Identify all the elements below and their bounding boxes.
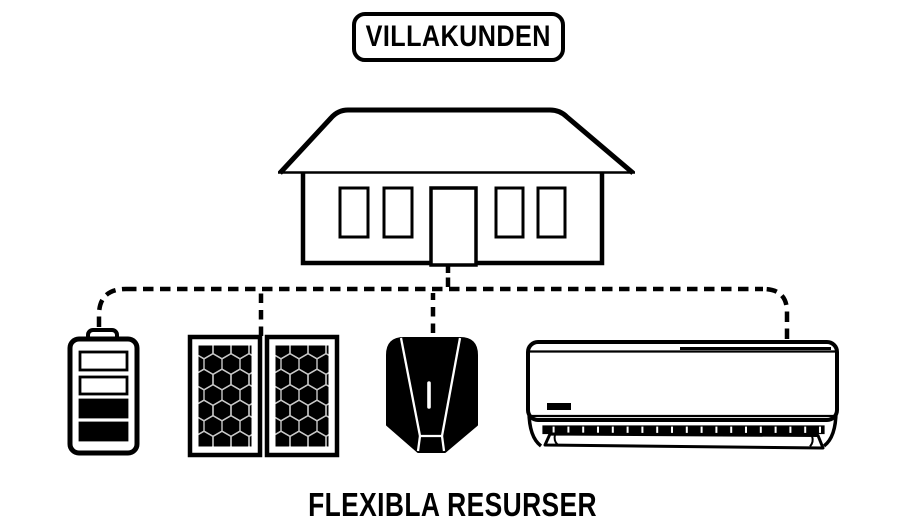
air-vent-louvers: [543, 426, 824, 434]
battery-icon: [64, 326, 142, 458]
solar-panel: [267, 337, 337, 455]
window: [538, 188, 565, 237]
solar-panel: [190, 337, 260, 455]
title-badge: VILLAKUNDEN: [352, 12, 565, 62]
heat-pump-icon: [525, 339, 840, 453]
window: [340, 188, 368, 237]
display-panel: [547, 403, 571, 410]
title-badge-label: VILLAKUNDEN: [366, 20, 551, 54]
ev-charger-icon: [384, 335, 482, 457]
infographic-canvas: VILLAKUNDEN FLEXIBLA RESURSER: [0, 0, 905, 528]
caption: FLEXIBLA RESURSER: [0, 486, 905, 524]
door: [431, 188, 476, 265]
window: [496, 188, 523, 237]
caption-label: FLEXIBLA RESURSER: [308, 486, 597, 524]
solar-panels-icon: [186, 333, 342, 459]
window: [384, 188, 412, 237]
house-icon: [266, 98, 640, 270]
air-flap: [545, 434, 823, 448]
